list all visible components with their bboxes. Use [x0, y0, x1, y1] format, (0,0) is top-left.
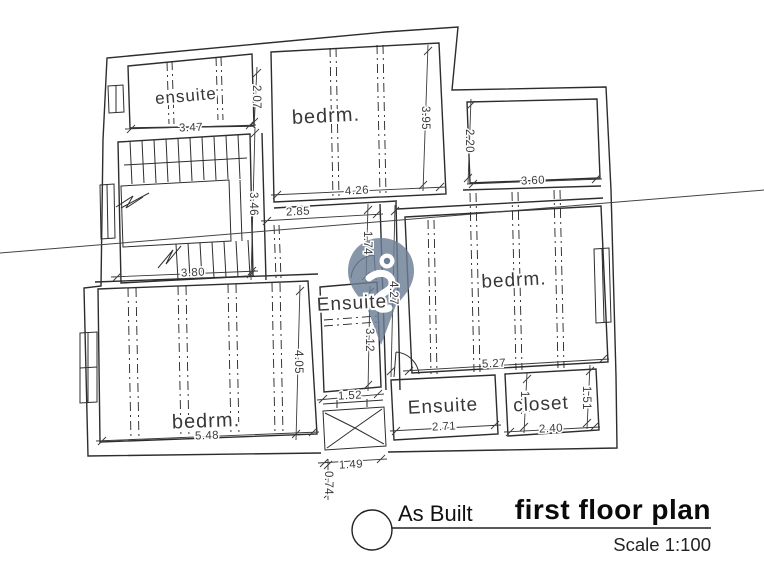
window-right-bedroom [594, 248, 611, 323]
room-label-bedrm-right: bedrm. [481, 268, 547, 292]
title-marker-circle [352, 510, 392, 550]
dim-360: 3.60 [521, 174, 546, 187]
stairs [116, 135, 250, 280]
room-label-ensuite-tl: ensuite [154, 84, 217, 108]
dim-285: 2.85 [286, 205, 311, 218]
balcony [323, 399, 386, 450]
dim-426: 4.26 [345, 184, 370, 197]
dim-271: 2.71 [432, 420, 457, 433]
scale-label: Scale 1:100 [613, 534, 711, 555]
dim-240: 2.40 [539, 422, 564, 435]
dim-174: 1.74 [361, 231, 373, 255]
dim-427: 4.27 [387, 281, 399, 305]
plan-phase-label: As Built [398, 501, 473, 526]
windows [80, 85, 611, 403]
dim-405: 4.05 [292, 350, 304, 374]
room-label-closet: closet [513, 393, 570, 417]
dim-220: 2.20 [463, 129, 475, 153]
room-label-bedrm-bottom-left: bedrm. [171, 409, 240, 433]
dim-346: 3.46 [247, 192, 259, 216]
window-left-bedroom [80, 332, 97, 403]
dim-207: 2.07 [250, 85, 262, 109]
window-left-ensuite [108, 85, 124, 113]
room-label-bedrm-top: bedrm. [291, 104, 360, 130]
dim-395: 3.95 [419, 106, 431, 130]
room-label-ensuite-bottom: Ensuite [407, 394, 478, 419]
dim-149: 1.49 [339, 458, 364, 471]
dim-151-closet: 1.51 [580, 386, 592, 410]
plan-title: first floor plan [515, 494, 711, 525]
dim-347: 3.47 [179, 122, 203, 135]
pin-glyph-dot-center [384, 258, 390, 264]
dim-074: 0.74 [322, 471, 334, 495]
dim-380: 3.80 [181, 266, 206, 279]
dim-312: 3.12 [363, 328, 375, 352]
title-block: As Built first floor plan Scale 1:100 [352, 494, 711, 555]
dim-152: 1.52 [338, 389, 363, 402]
dim-527: 5.27 [482, 357, 507, 370]
room-label-ensuite-center: Ensuite [316, 291, 387, 316]
floor-plan-drawing: 3.47 2.07 3.95 4.26 2.20 3.60 2.85 1.74 … [0, 0, 764, 570]
floor-plan-page: 3.47 2.07 3.95 4.26 2.20 3.60 2.85 1.74 … [0, 0, 764, 570]
